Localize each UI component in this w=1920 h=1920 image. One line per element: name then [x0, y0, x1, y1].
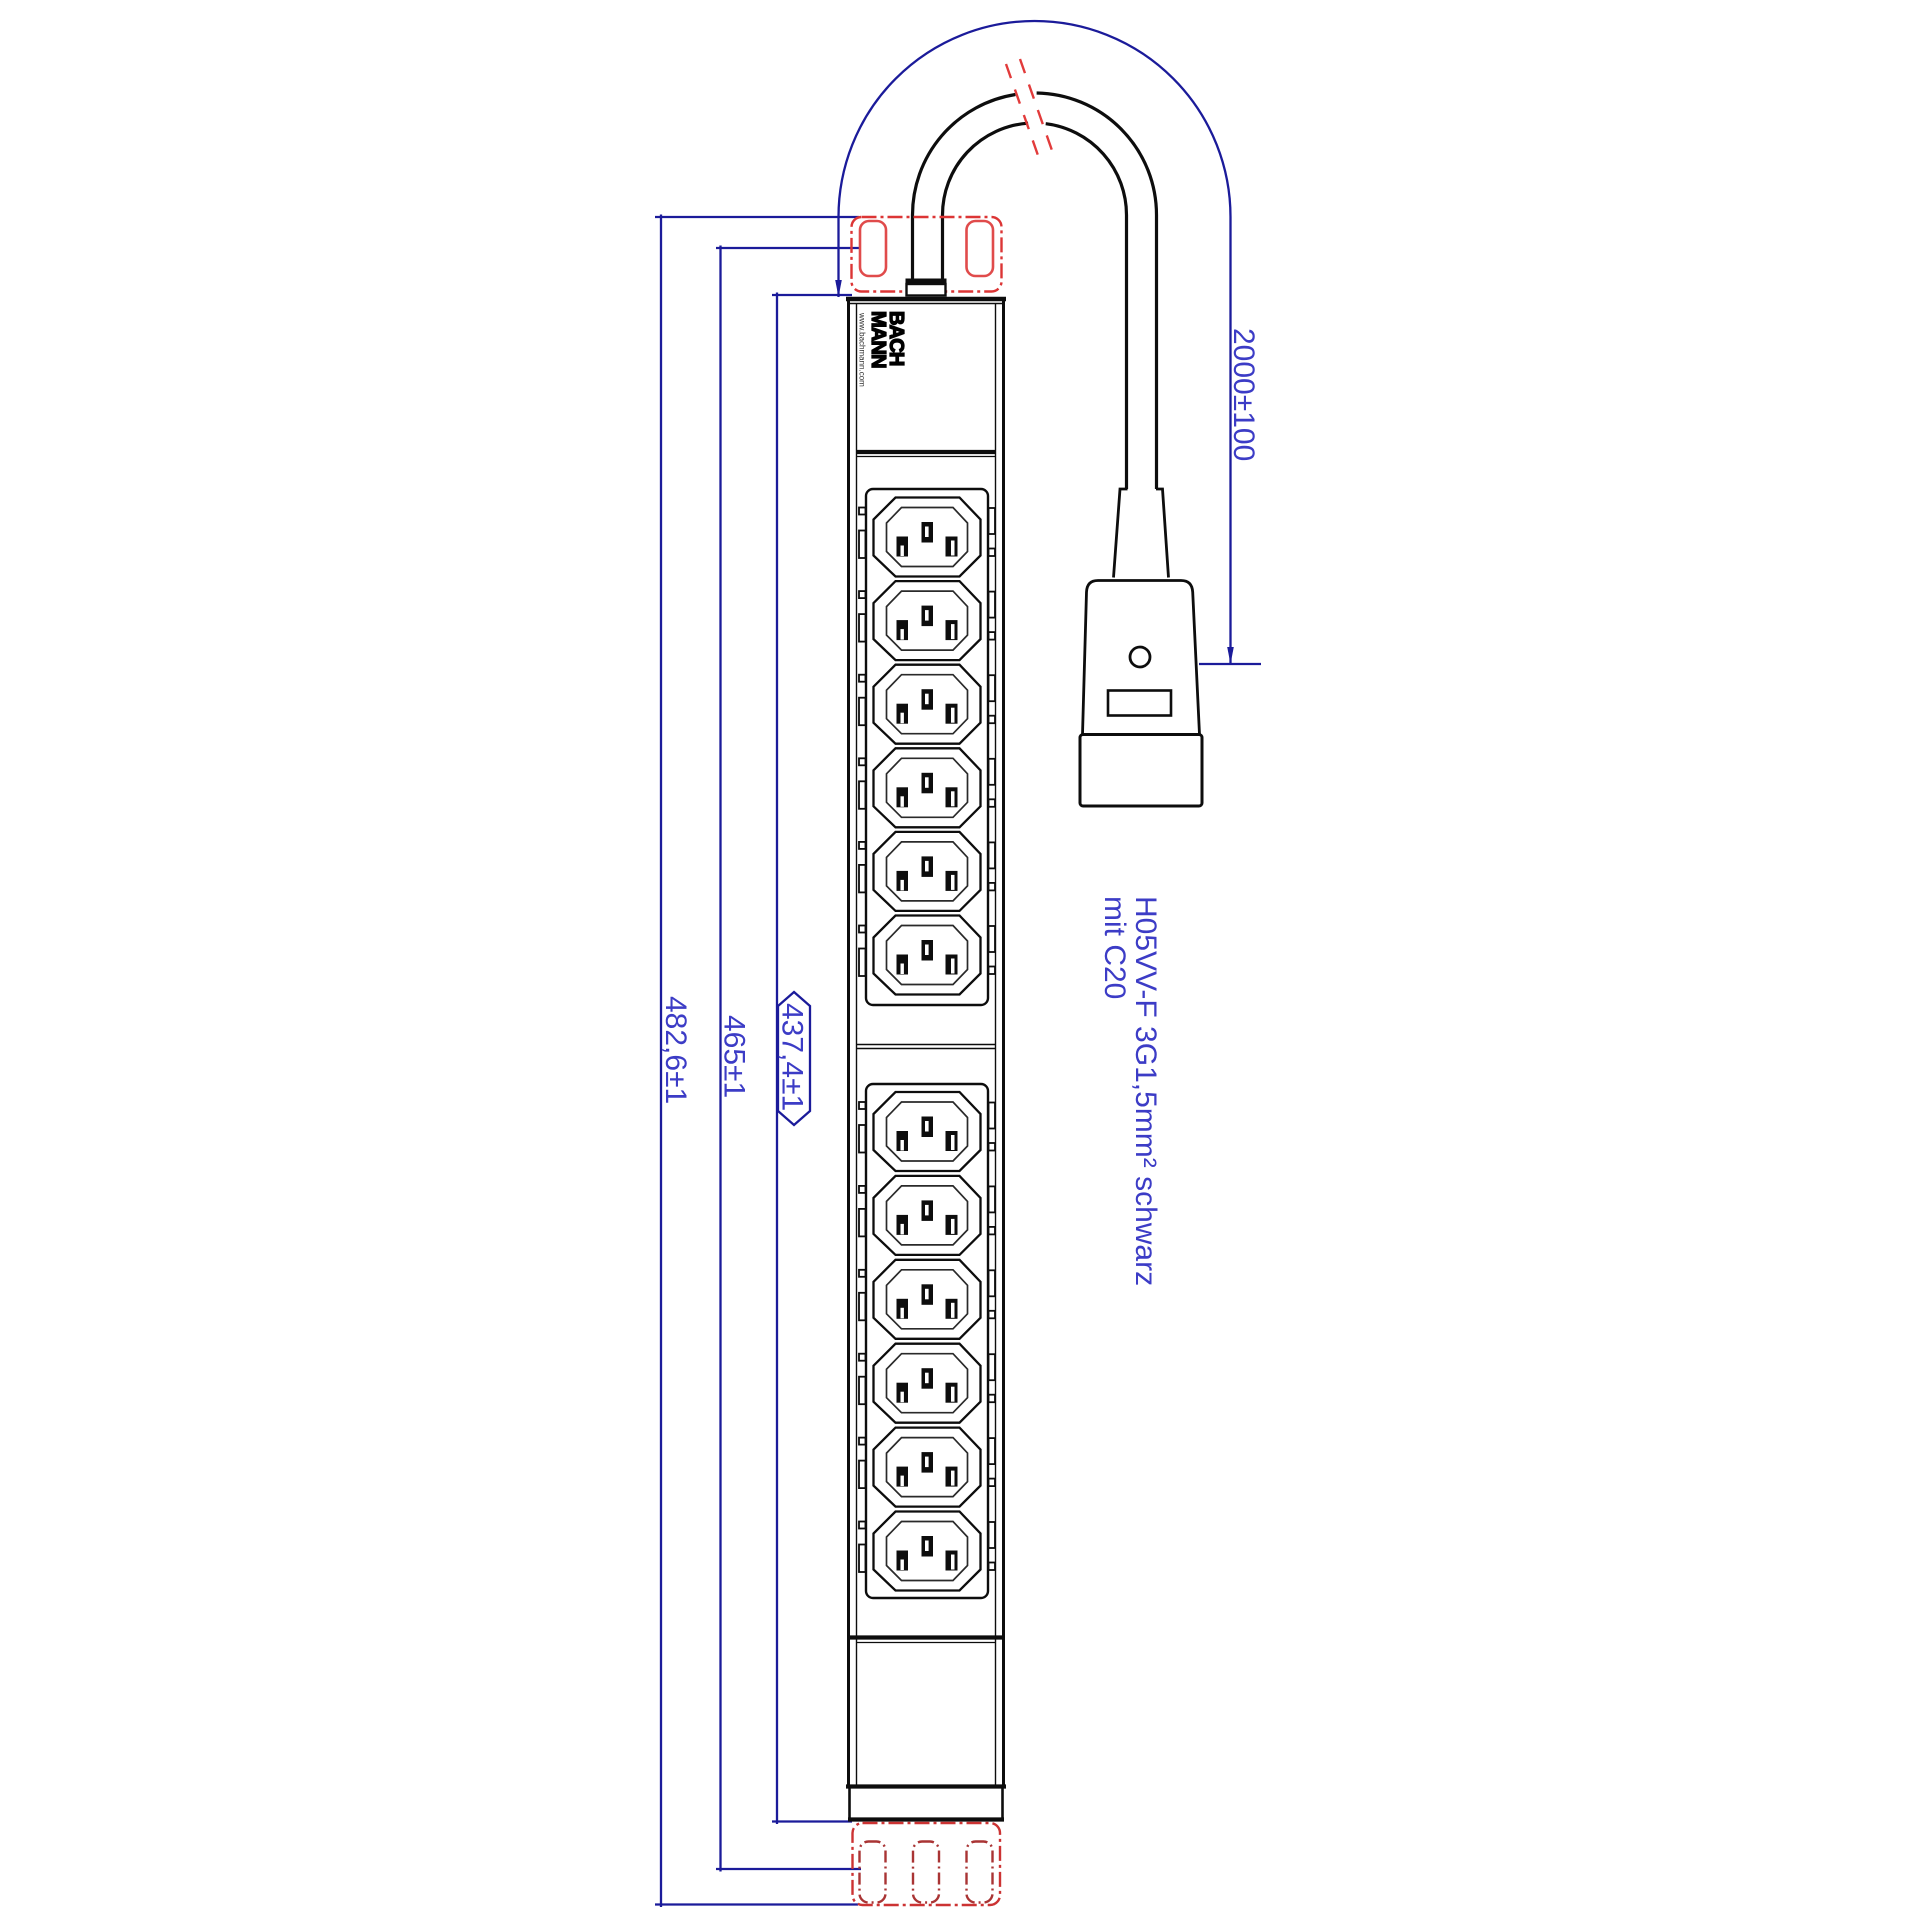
- svg-text:H05VV-F 3G1,5mm² schwarz: H05VV-F 3G1,5mm² schwarz: [1129, 896, 1162, 1286]
- svg-text:437,4±1: 437,4±1: [776, 1003, 809, 1111]
- svg-text:www.bachmann.com: www.bachmann.com: [858, 312, 867, 387]
- svg-text:465±1: 465±1: [718, 1015, 751, 1098]
- svg-text:MANN: MANN: [867, 311, 889, 368]
- svg-text:2000±100: 2000±100: [1227, 328, 1260, 461]
- svg-text:482,6±1: 482,6±1: [659, 996, 692, 1104]
- svg-text:mit C20: mit C20: [1098, 896, 1131, 999]
